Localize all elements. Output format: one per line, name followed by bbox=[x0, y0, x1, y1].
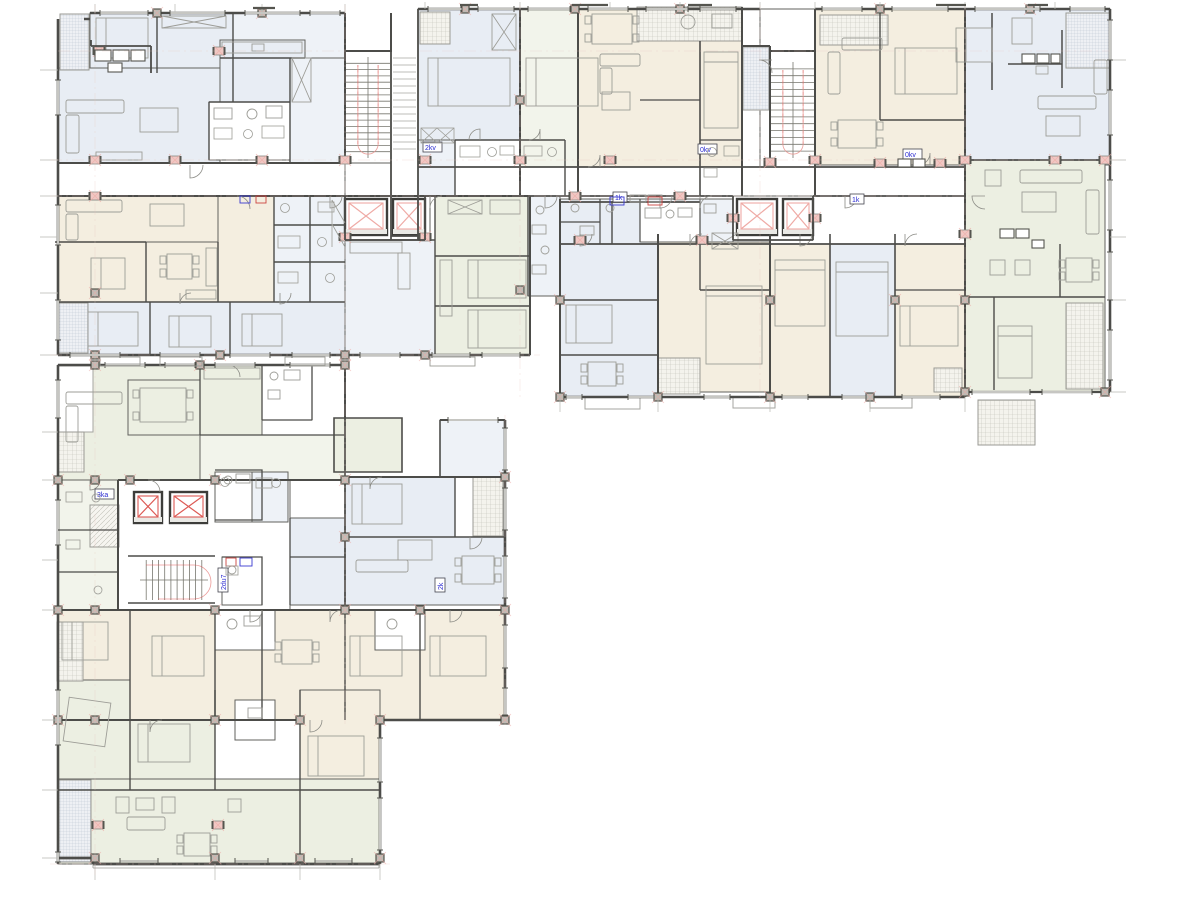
svg-text:2k: 2k bbox=[438, 582, 445, 590]
svg-text:2kv: 2kv bbox=[425, 145, 436, 152]
svg-text:1k: 1k bbox=[615, 195, 623, 202]
svg-text:0kv: 0kv bbox=[905, 152, 916, 159]
svg-text:1k: 1k bbox=[852, 197, 860, 204]
svg-text:2du7: 2du7 bbox=[221, 574, 228, 590]
